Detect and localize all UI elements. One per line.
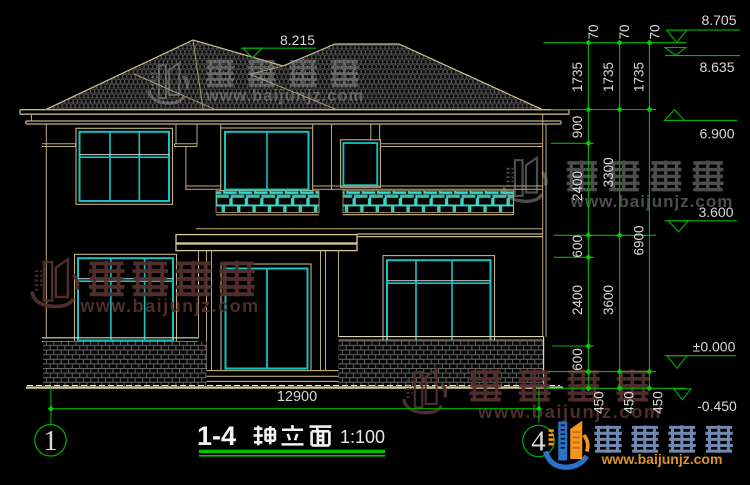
svg-text:8.215: 8.215 [280, 32, 315, 48]
svg-text:600: 600 [570, 235, 585, 258]
svg-text:70: 70 [648, 24, 663, 39]
svg-text:1735: 1735 [632, 62, 647, 92]
svg-text:1: 1 [43, 425, 58, 457]
svg-text:1-4: 1-4 [197, 421, 236, 451]
svg-text:70: 70 [617, 24, 632, 39]
svg-text:1735: 1735 [601, 62, 616, 92]
svg-text:www.baijunjz.com: www.baijunjz.com [601, 451, 723, 467]
svg-text:450: 450 [592, 391, 607, 414]
svg-text:3300: 3300 [601, 157, 616, 187]
svg-text:3.600: 3.600 [698, 204, 733, 220]
svg-text:70: 70 [586, 24, 601, 39]
svg-text:12900: 12900 [277, 389, 317, 405]
svg-text:3600: 3600 [601, 285, 616, 315]
svg-text:2400: 2400 [570, 171, 585, 201]
svg-text:-0.450: -0.450 [697, 398, 737, 414]
svg-text:2400: 2400 [570, 285, 585, 315]
svg-text:8.705: 8.705 [701, 12, 736, 28]
svg-text:6900: 6900 [632, 225, 647, 255]
svg-text:600: 600 [570, 348, 585, 371]
svg-text:900: 900 [570, 116, 585, 139]
svg-text:8.635: 8.635 [699, 59, 734, 75]
svg-text:450: 450 [622, 391, 637, 414]
svg-text:www.baijunjz.com: www.baijunjz.com [79, 296, 259, 316]
svg-text:1:100: 1:100 [340, 427, 385, 447]
svg-text:1735: 1735 [570, 62, 585, 92]
svg-text:450: 450 [651, 391, 666, 414]
svg-text:±0.000: ±0.000 [693, 339, 736, 355]
svg-text:6.900: 6.900 [699, 126, 734, 142]
svg-text:www.baijunjz.com: www.baijunjz.com [205, 87, 364, 105]
